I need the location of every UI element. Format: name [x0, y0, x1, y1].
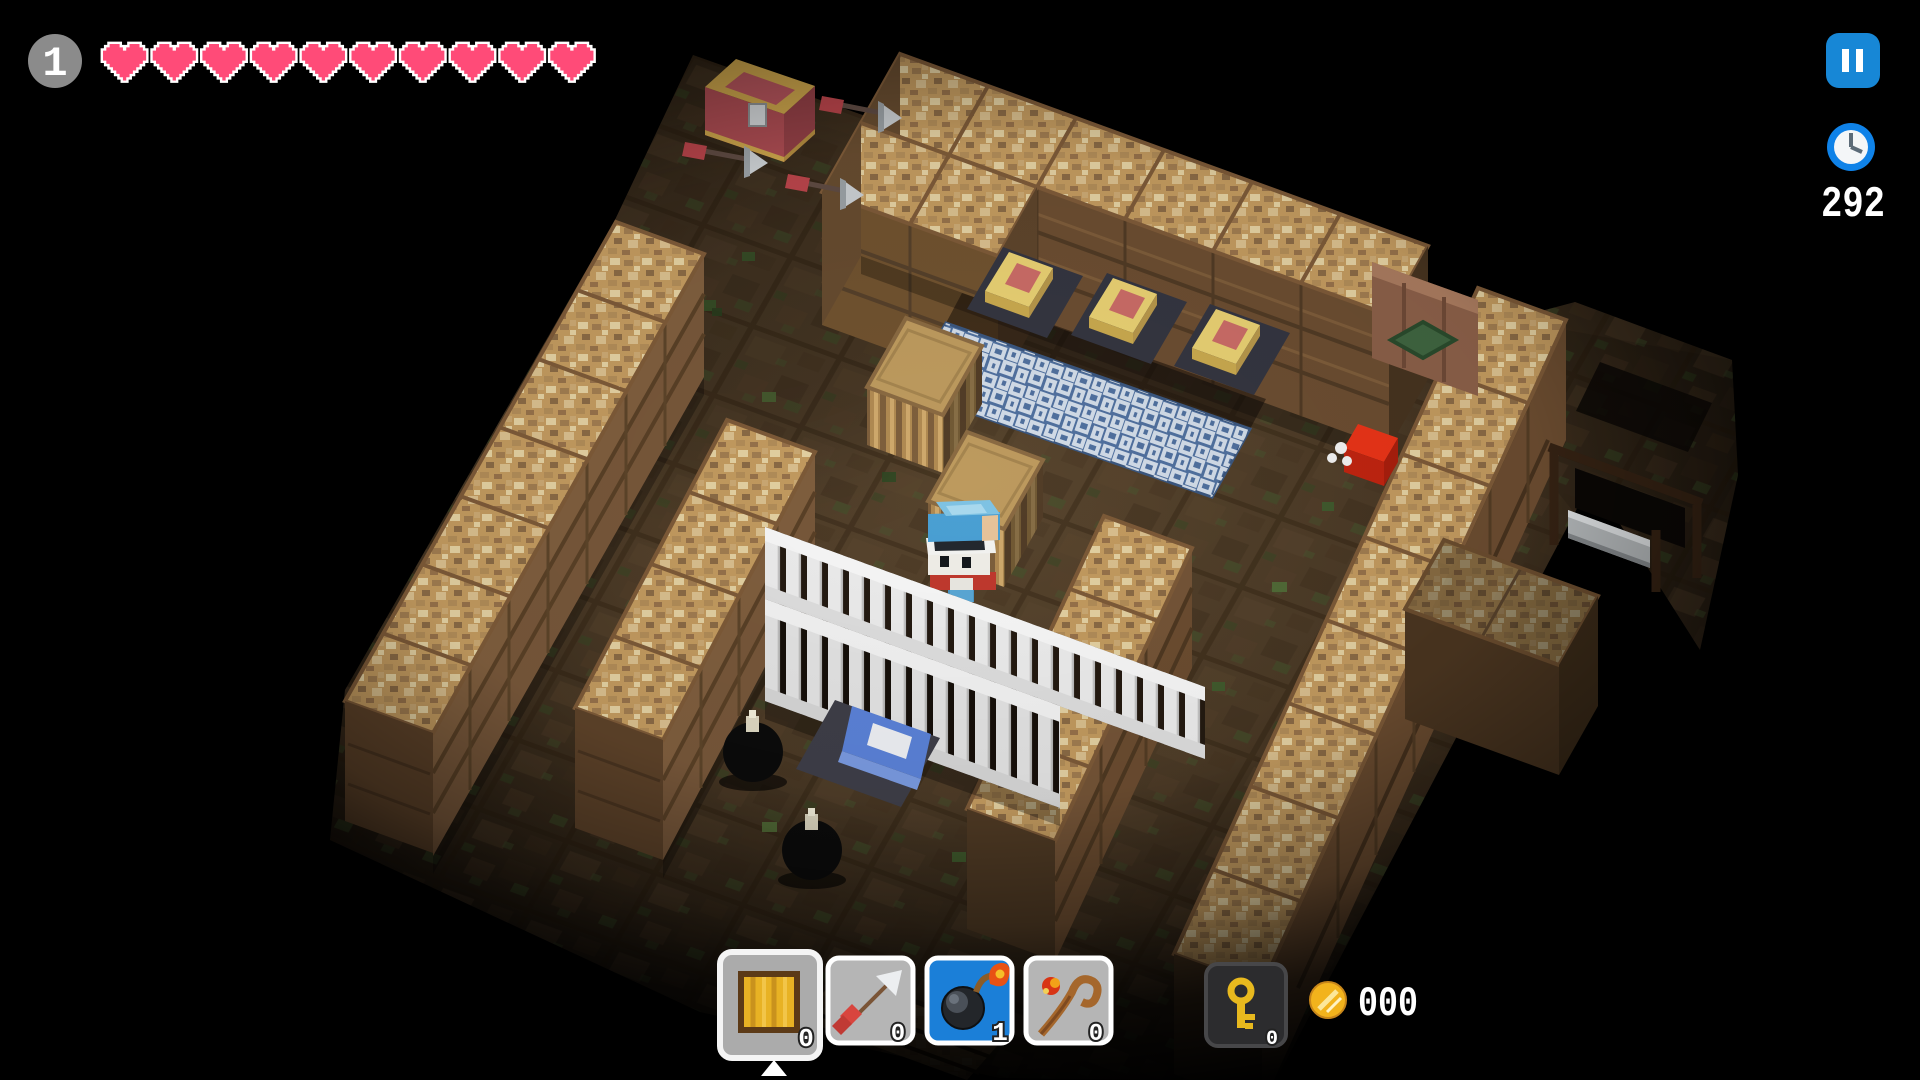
svg-text:292: 292: [1821, 180, 1885, 230]
svg-text:1: 1: [992, 1018, 1008, 1048]
svg-text:0: 0: [1266, 1028, 1278, 1051]
svg-text:0: 0: [1089, 1021, 1103, 1048]
svg-text:1: 1: [42, 40, 67, 88]
svg-text:0: 0: [798, 1024, 814, 1054]
svg-text:0: 0: [891, 1021, 905, 1048]
svg-text:000: 000: [1358, 980, 1418, 1028]
